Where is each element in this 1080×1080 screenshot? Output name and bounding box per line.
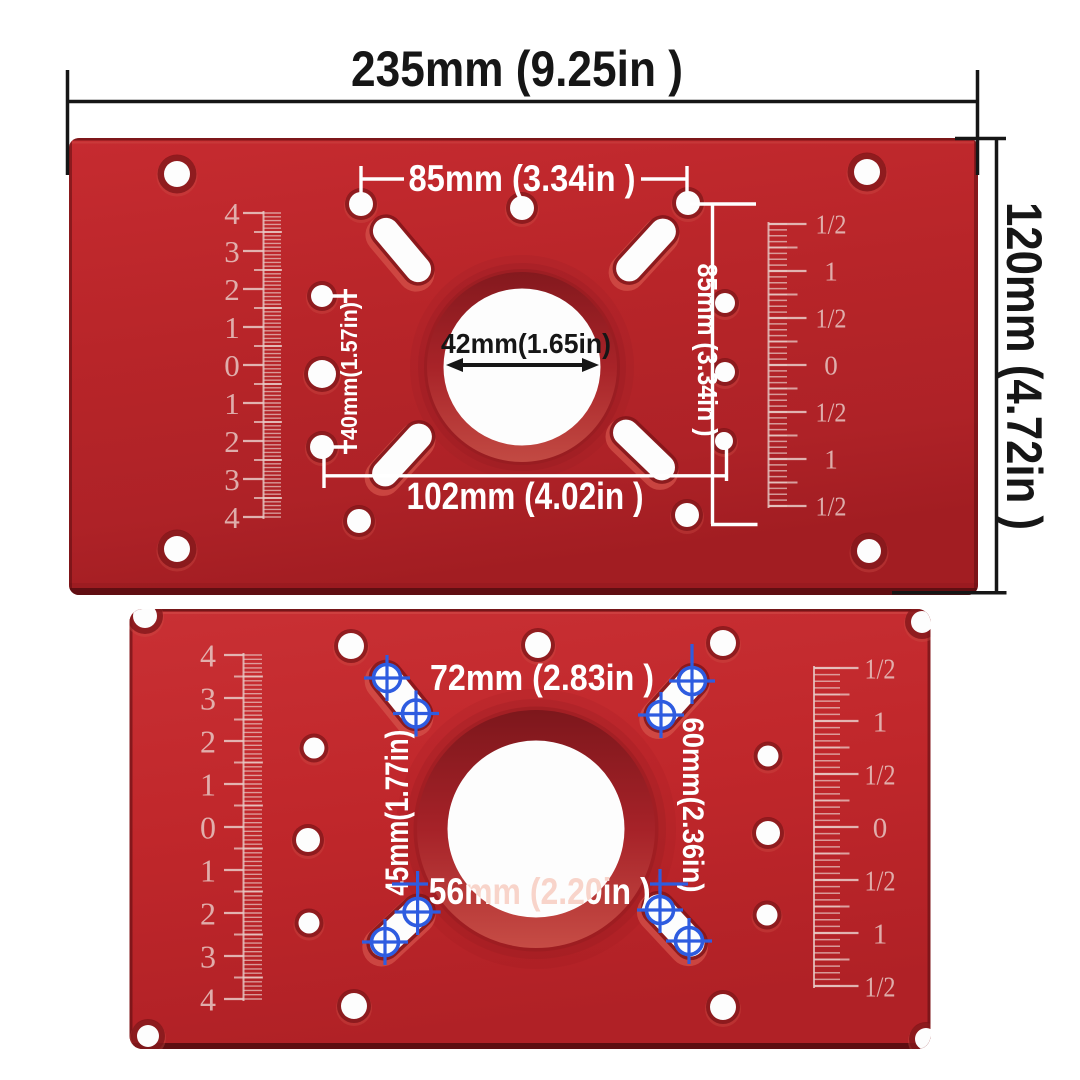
svg-text:4: 4 [224, 196, 240, 231]
svg-text:1: 1 [200, 767, 216, 803]
svg-text:0: 0 [873, 812, 888, 844]
svg-text:1/2: 1/2 [865, 653, 896, 685]
svg-text:1/2: 1/2 [816, 492, 847, 522]
svg-text:45mm(1.77in): 45mm(1.77in) [379, 730, 415, 896]
svg-text:0: 0 [224, 348, 240, 383]
svg-text:0: 0 [200, 810, 216, 846]
svg-text:1/2: 1/2 [816, 398, 847, 428]
svg-text:1: 1 [824, 257, 838, 287]
svg-text:2: 2 [200, 896, 216, 932]
svg-text:1/2: 1/2 [865, 759, 896, 791]
svg-text:85mm (3.34in ): 85mm (3.34in ) [409, 158, 636, 199]
svg-text:42mm(1.65in): 42mm(1.65in) [441, 328, 611, 359]
svg-text:72mm (2.83in ): 72mm (2.83in ) [430, 657, 654, 698]
svg-text:0: 0 [824, 351, 838, 381]
svg-text:85mm (3.34in ): 85mm (3.34in ) [692, 264, 723, 437]
svg-text:1/2: 1/2 [816, 210, 847, 240]
svg-text:60mm(2.36in): 60mm(2.36in) [676, 718, 709, 893]
svg-text:1: 1 [873, 706, 888, 738]
svg-text:2: 2 [224, 272, 240, 307]
svg-text:120mm (4.72in ): 120mm (4.72in ) [996, 202, 1052, 530]
svg-text:1/2: 1/2 [865, 865, 896, 897]
svg-text:235mm (9.25in ): 235mm (9.25in ) [351, 41, 683, 97]
svg-text:4: 4 [200, 982, 216, 1018]
svg-text:102mm (4.02in ): 102mm (4.02in ) [407, 476, 644, 518]
svg-text:40mm(1.57in): 40mm(1.57in) [336, 302, 362, 440]
svg-text:1: 1 [224, 310, 240, 345]
svg-text:4: 4 [224, 500, 240, 535]
svg-text:1: 1 [200, 853, 216, 889]
svg-text:3: 3 [224, 462, 240, 497]
svg-text:1: 1 [824, 445, 838, 475]
svg-text:1/2: 1/2 [816, 304, 847, 334]
svg-text:3: 3 [224, 234, 240, 269]
svg-text:2: 2 [224, 424, 240, 459]
svg-text:3: 3 [200, 681, 216, 717]
svg-text:1: 1 [224, 386, 240, 421]
svg-text:2: 2 [200, 724, 216, 760]
svg-text:3: 3 [200, 939, 216, 975]
svg-text:4: 4 [200, 638, 216, 674]
svg-text:1/2: 1/2 [865, 971, 896, 1003]
svg-text:1: 1 [873, 918, 888, 950]
